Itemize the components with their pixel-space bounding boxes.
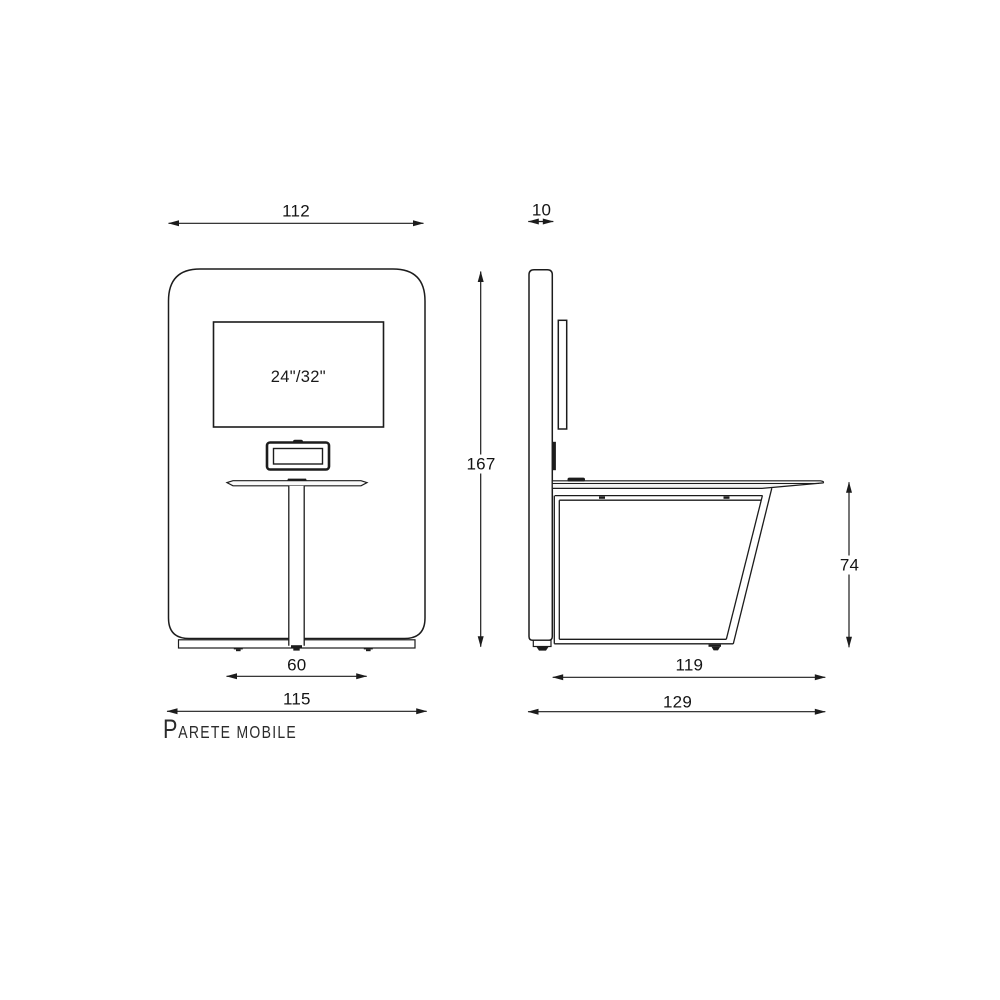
side-media-box-profile (552, 442, 556, 470)
media-box-inner (274, 449, 323, 465)
tabletop-side (552, 481, 823, 489)
screen-size-label: 24"/32" (271, 369, 326, 386)
front-foot-right (364, 648, 373, 652)
front-foot-left (234, 648, 243, 652)
dim-label-thickness-10: 10 (532, 201, 551, 218)
side-panel-outline (529, 270, 552, 641)
frame-leg-inner (726, 496, 762, 639)
dim-label-total-depth-129: 129 (663, 693, 692, 710)
frame-screw-left (599, 496, 605, 498)
side-panel-foot (536, 647, 548, 651)
dim-label-table-60: 60 (287, 656, 306, 673)
frame-screw-right (724, 496, 730, 498)
side-view (528, 222, 849, 712)
side-dimension-lines (528, 222, 849, 712)
tabletop-clip (568, 478, 586, 482)
side-frame-foot (709, 645, 722, 651)
dim-label-width-112: 112 (282, 202, 310, 219)
drawing-title-initial: P (163, 714, 178, 744)
line-work (0, 0, 1000, 1000)
tabletop-front (227, 481, 367, 486)
side-panel-foot-pad (533, 640, 551, 646)
dim-label-height-167: 167 (464, 455, 499, 474)
pedestal-column (289, 486, 304, 646)
support-frame (554, 488, 772, 644)
dim-label-frame-depth-119: 119 (675, 657, 703, 674)
front-view (167, 223, 481, 711)
dim-label-table-height-74: 74 (837, 555, 862, 574)
frame-leg-outer (733, 488, 772, 644)
drawing-title: PARETE MOBILE (163, 714, 297, 745)
technical-drawing-canvas: 24"/32" 112 167 60 115 10 74 119 129 PAR… (0, 0, 1000, 1000)
side-screen-profile (558, 320, 566, 429)
dim-label-base-115: 115 (283, 691, 311, 708)
drawing-title-rest: ARETE MOBILE (178, 722, 297, 742)
